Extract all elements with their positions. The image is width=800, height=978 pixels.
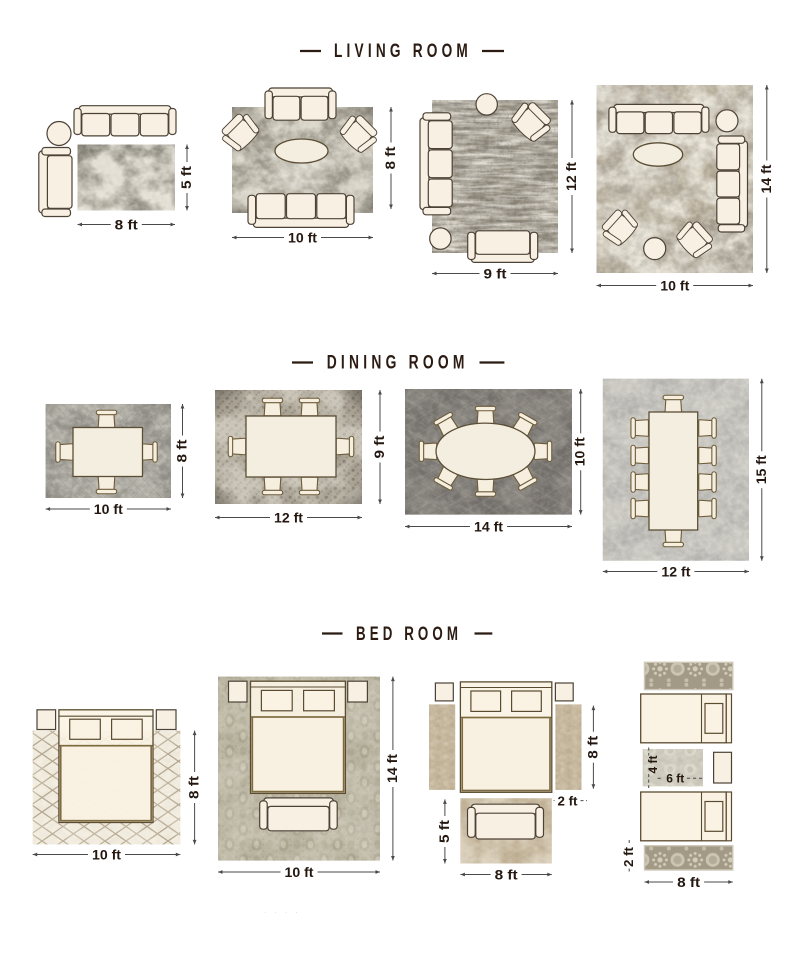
svg-text:10 ft: 10 ft [660,278,689,294]
svg-text:12 ft: 12 ft [274,510,303,526]
svg-text:8 ft: 8 ft [383,146,399,169]
svg-text:14 ft: 14 ft [385,754,401,783]
svg-text:12 ft: 12 ft [661,564,690,580]
svg-text:8 ft: 8 ft [585,735,601,758]
svg-text:14 ft: 14 ft [759,164,775,193]
svg-text:10 ft: 10 ft [92,847,121,863]
svg-text:8 ft: 8 ft [187,776,203,799]
svg-text:9 ft: 9 ft [484,266,507,282]
svg-text:6 ft: 6 ft [666,772,684,786]
svg-text:5 ft: 5 ft [437,820,453,843]
svg-text:10 ft: 10 ft [288,230,317,246]
svg-text:8 ft: 8 ft [175,439,191,462]
svg-text:12 ft: 12 ft [564,162,580,191]
svg-text:8 ft: 8 ft [677,875,700,891]
svg-text:14 ft: 14 ft [474,519,503,535]
svg-text:4 ft: 4 ft [646,755,660,773]
svg-text:. . . .: . . . . [264,906,301,915]
svg-text:LIVING ROOM: LIVING ROOM [334,40,472,62]
svg-text:2 ft: 2 ft [558,794,579,808]
svg-text:9 ft: 9 ft [372,435,388,458]
svg-text:5 ft: 5 ft [179,166,195,189]
svg-text:2 ft: 2 ft [622,846,636,867]
svg-text:8 ft: 8 ft [115,217,138,233]
svg-text:15 ft: 15 ft [754,455,770,484]
svg-text:10 ft: 10 ft [573,437,589,466]
svg-text:10 ft: 10 ft [285,865,314,881]
svg-text:DINING ROOM: DINING ROOM [327,352,469,374]
svg-text:10 ft: 10 ft [94,502,123,518]
svg-text:8 ft: 8 ft [495,867,518,883]
svg-text:BED ROOM: BED ROOM [356,623,462,645]
